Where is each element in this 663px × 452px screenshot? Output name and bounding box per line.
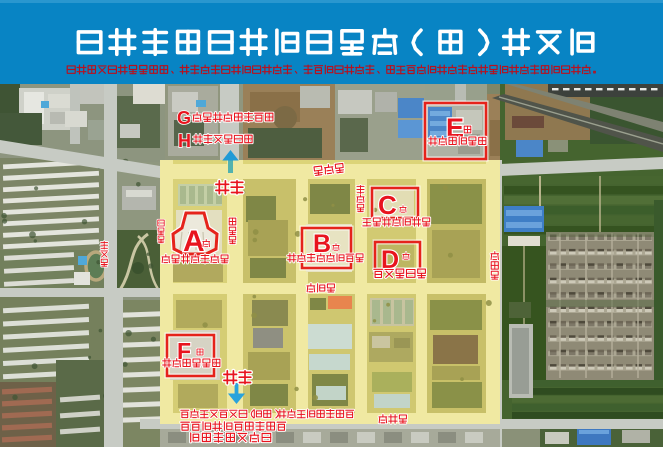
- svg-text:C: C: [378, 190, 397, 220]
- svg-text:A: A: [183, 225, 205, 258]
- svg-text:H: H: [178, 131, 191, 151]
- svg-text:G: G: [177, 108, 191, 128]
